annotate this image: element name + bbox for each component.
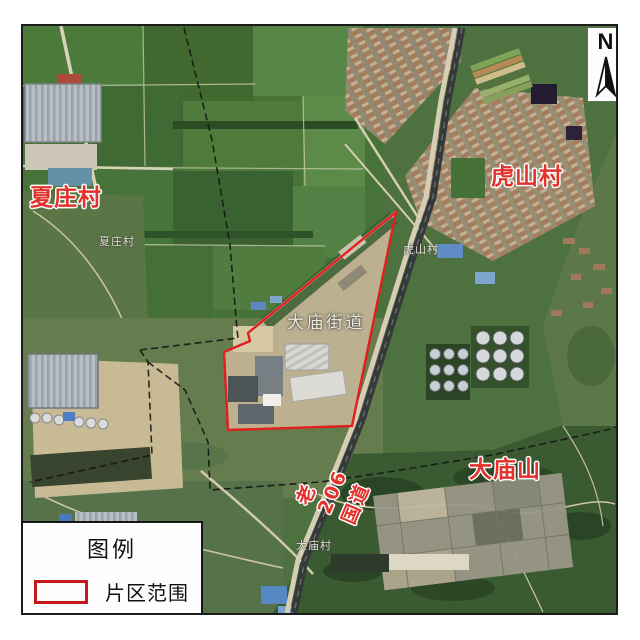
label-damiao-village-small: 大庙村	[296, 540, 332, 551]
map-canvas: 夏庄村 虎山村 大庙山 大庙街道 夏庄村 虎山村 大庙村 老206国道 N 图例…	[0, 0, 640, 640]
label-xiazhuang-village: 夏庄村	[30, 187, 102, 210]
north-arrow: N	[588, 28, 618, 101]
district-extent-swatch-icon	[34, 580, 88, 604]
legend-item-label: 片区范围	[105, 577, 189, 606]
legend-title: 图例	[23, 532, 201, 564]
label-hushan-small: 虎山村	[403, 244, 439, 255]
map-frame: 夏庄村 虎山村 大庙山 大庙街道 夏庄村 虎山村 大庙村 老206国道 N 图例…	[21, 24, 618, 615]
label-damiao-subdistrict: 大庙街道	[287, 314, 365, 331]
legend-item: 片区范围	[34, 577, 201, 606]
north-label: N	[598, 29, 614, 55]
label-hushan-village: 虎山村	[491, 166, 563, 189]
label-xiazhuang-small: 夏庄村	[99, 236, 135, 247]
label-damiao-mountain: 大庙山	[469, 459, 541, 482]
legend: 图例 片区范围	[23, 521, 203, 613]
north-arrow-icon	[591, 55, 619, 99]
